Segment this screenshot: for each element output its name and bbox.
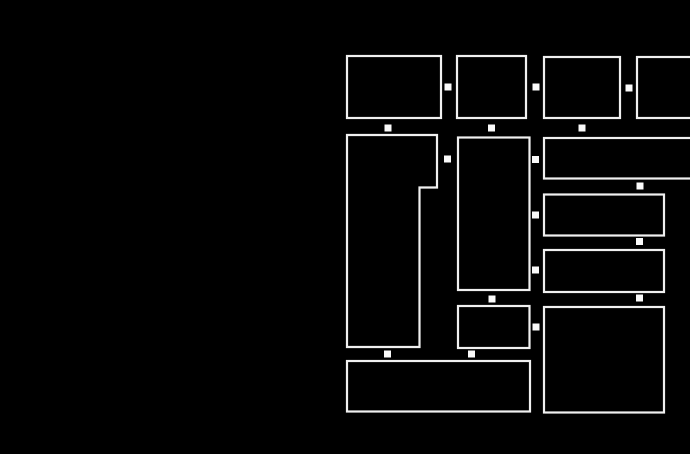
resize-handle[interactable] — [489, 296, 496, 303]
tile-top-row-4-clipped[interactable] — [637, 57, 690, 118]
desktop-background — [0, 0, 690, 454]
resize-handle[interactable] — [385, 125, 392, 132]
resize-handle[interactable] — [384, 351, 391, 358]
resize-handle[interactable] — [445, 84, 452, 91]
resize-handle[interactable] — [636, 295, 643, 302]
tiling-layout-diagram — [0, 0, 690, 454]
resize-handle[interactable] — [488, 125, 495, 132]
resize-handle[interactable] — [637, 183, 644, 190]
tile-right-big[interactable] — [544, 307, 664, 413]
tile-top-row-2[interactable] — [457, 56, 526, 118]
resize-handle[interactable] — [626, 85, 633, 92]
resize-handle[interactable] — [532, 212, 539, 219]
resize-handle[interactable] — [636, 238, 643, 245]
resize-handle[interactable] — [532, 267, 539, 274]
tile-top-row-1[interactable] — [347, 56, 441, 118]
resize-handle[interactable] — [444, 156, 451, 163]
tile-bottom-wide[interactable] — [347, 361, 530, 412]
tile-mid-column-tall[interactable] — [458, 138, 530, 291]
tile-right-wide-1-clipped[interactable] — [544, 138, 690, 179]
tile-notched-tall[interactable] — [347, 135, 437, 347]
tile-right-wide-3[interactable] — [544, 250, 664, 292]
tile-right-wide-2[interactable] — [544, 195, 664, 236]
resize-handle[interactable] — [468, 351, 475, 358]
resize-handle[interactable] — [533, 324, 540, 331]
resize-handle[interactable] — [532, 156, 539, 163]
tile-mid-column-small[interactable] — [458, 306, 530, 348]
resize-handle[interactable] — [579, 125, 586, 132]
tile-top-row-3[interactable] — [544, 57, 620, 118]
resize-handle[interactable] — [533, 84, 540, 91]
